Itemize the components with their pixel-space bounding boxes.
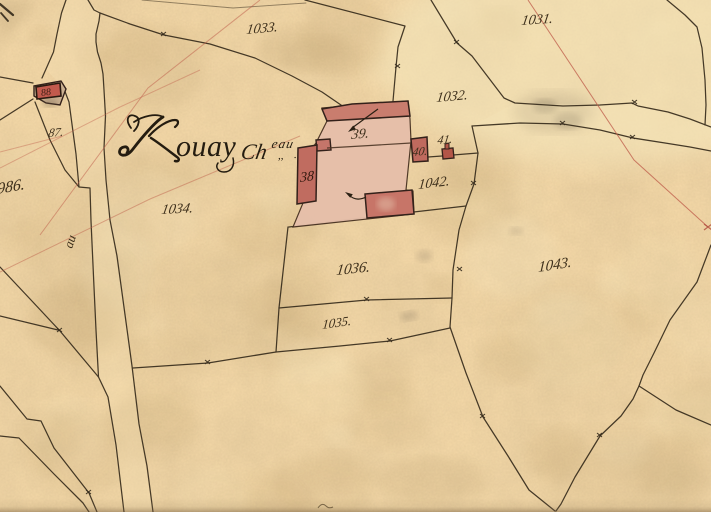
svg-text:1034.: 1034. [160, 201, 194, 218]
svg-text:41.: 41. [437, 132, 454, 148]
svg-text:1033.: 1033. [245, 20, 279, 38]
svg-text:87.: 87. [48, 125, 65, 141]
svg-text:40.: 40. [412, 144, 429, 160]
svg-text:ouay: ouay [176, 130, 237, 163]
svg-text:38: 38 [299, 169, 314, 186]
svg-text:eau: eau [270, 136, 296, 151]
svg-text:1031.: 1031. [520, 12, 554, 29]
svg-text:39.: 39. [349, 126, 370, 143]
svg-text:88: 88 [41, 87, 51, 99]
svg-text:.: . [294, 149, 297, 161]
svg-text:1032.: 1032. [435, 88, 469, 106]
svg-text:Ch: Ch [239, 139, 269, 164]
svg-text:,,: ,, [278, 150, 284, 162]
